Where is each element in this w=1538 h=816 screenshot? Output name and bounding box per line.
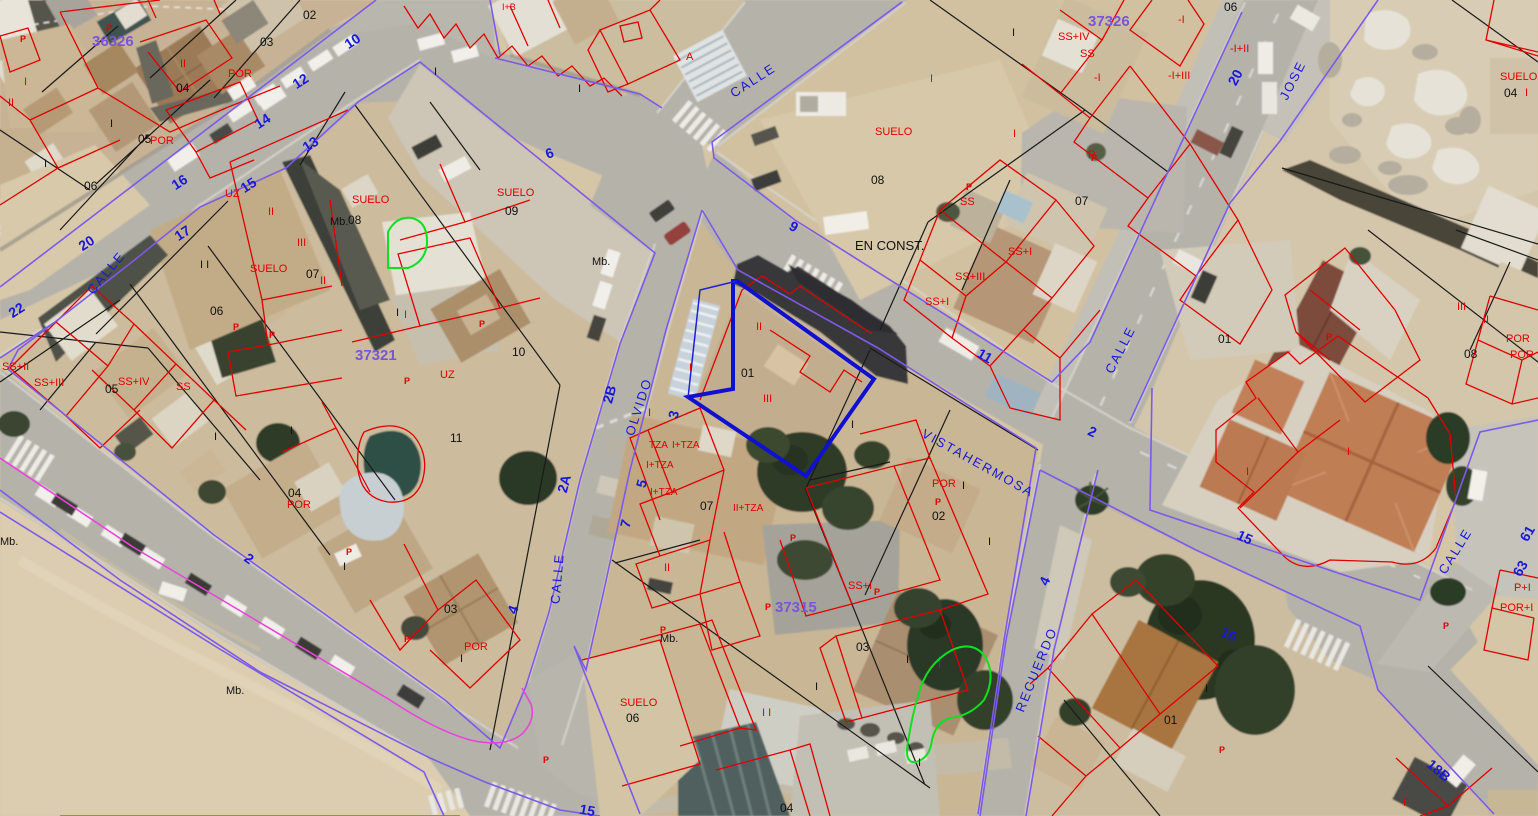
svg-text:POR: POR [1506, 333, 1530, 345]
svg-text:I: I [110, 118, 113, 130]
svg-text:03: 03 [260, 35, 274, 49]
svg-text:P: P [1326, 332, 1332, 342]
svg-text:06: 06 [1224, 0, 1238, 14]
svg-text:-I: -I [1094, 72, 1101, 84]
svg-text:P: P [106, 23, 112, 33]
svg-text:I: I [930, 73, 933, 85]
svg-text:Mb.: Mb. [226, 685, 244, 697]
svg-text:I I: I I [200, 259, 209, 271]
svg-text:P: P [404, 634, 410, 644]
svg-text:Mb.: Mb. [0, 536, 18, 548]
svg-text:I: I [290, 425, 293, 437]
svg-text:P+I: P+I [1514, 582, 1531, 594]
svg-text:-I: -I [1178, 14, 1185, 26]
svg-text:I: I [214, 431, 217, 443]
svg-text:SUELO: SUELO [497, 187, 535, 199]
svg-text:SUELO: SUELO [875, 126, 913, 138]
svg-text:07: 07 [1075, 194, 1089, 208]
svg-text:II: II [1483, 314, 1489, 326]
svg-text:A: A [686, 51, 694, 63]
svg-text:36326: 36326 [92, 33, 134, 50]
svg-text:37315: 37315 [775, 599, 817, 616]
svg-text:SUELO: SUELO [250, 263, 288, 275]
svg-text:06: 06 [210, 304, 224, 318]
svg-text:POR+I: POR+I [1500, 602, 1533, 614]
svg-text:III: III [1457, 301, 1466, 313]
svg-text:P: P [1219, 745, 1225, 755]
svg-text:UZ: UZ [225, 188, 240, 200]
svg-text:10: 10 [512, 345, 526, 359]
svg-text:POR: POR [228, 68, 252, 80]
svg-text:08: 08 [1464, 347, 1478, 361]
svg-text:I: I [1013, 128, 1016, 140]
svg-text:02: 02 [303, 8, 317, 22]
svg-text:SS+I: SS+I [925, 296, 949, 308]
svg-text:09: 09 [505, 204, 519, 218]
svg-text:I: I [815, 681, 818, 693]
svg-text:11: 11 [450, 431, 463, 445]
svg-text:08: 08 [348, 213, 362, 227]
svg-text:I: I [988, 536, 991, 548]
svg-text:SS+III: SS+III [955, 271, 985, 283]
svg-text:P: P [765, 602, 771, 612]
svg-text:01: 01 [741, 366, 755, 380]
svg-text:P: P [269, 330, 275, 340]
svg-text:POR: POR [464, 641, 488, 653]
svg-text:I: I [1205, 683, 1208, 695]
svg-text:I+TZA: I+TZA [646, 460, 674, 471]
svg-text:SS+IV: SS+IV [118, 376, 150, 388]
svg-text:01: 01 [1218, 332, 1232, 346]
svg-text:III: III [763, 393, 772, 405]
svg-text:02: 02 [932, 509, 946, 523]
svg-text:P: P [543, 755, 549, 765]
svg-text:I: I [578, 83, 581, 95]
svg-text:04: 04 [1504, 86, 1518, 100]
svg-text:I: I [918, 757, 921, 769]
svg-text:I I: I I [762, 707, 771, 719]
svg-text:07: 07 [306, 267, 320, 281]
svg-text:I+B: I+B [502, 2, 516, 12]
svg-text:EN CONST.: EN CONST. [855, 238, 924, 253]
svg-text:II: II [180, 58, 186, 70]
svg-text:P: P [935, 497, 941, 507]
svg-text:I+TZA: I+TZA [650, 487, 678, 498]
svg-text:P: P [1091, 153, 1097, 163]
svg-text:II: II [756, 321, 762, 333]
svg-text:P: P [404, 376, 410, 386]
svg-text:SS+II: SS+II [2, 361, 29, 373]
svg-text:I: I [962, 480, 965, 492]
svg-text:-I+III: -I+III [1168, 70, 1190, 82]
svg-text:SUELO: SUELO [620, 697, 658, 709]
svg-text:II: II [320, 275, 326, 287]
svg-text:I: I [396, 307, 399, 319]
svg-text:P: P [874, 587, 880, 597]
svg-text:I: I [24, 76, 27, 88]
svg-text:SS+III: SS+III [34, 377, 64, 389]
svg-text:I: I [851, 419, 854, 431]
svg-text:01: 01 [1164, 713, 1178, 727]
svg-text:II: II [8, 97, 14, 109]
svg-text:I: I [434, 66, 437, 78]
svg-text:I: I [648, 407, 651, 419]
svg-text:37326: 37326 [1088, 13, 1130, 30]
svg-text:P: P [790, 533, 796, 543]
svg-text:SS: SS [960, 196, 975, 208]
svg-text:04: 04 [288, 486, 302, 500]
svg-text:I: I [1012, 27, 1015, 39]
svg-text:P: P [479, 319, 485, 329]
svg-text:POR: POR [1510, 349, 1534, 361]
svg-text:III: III [297, 237, 306, 249]
svg-text:P: P [660, 625, 666, 635]
svg-text:II+TZA: II+TZA [733, 503, 764, 514]
svg-text:I: I [906, 654, 909, 666]
svg-text:08: 08 [871, 173, 885, 187]
svg-text:POR: POR [932, 478, 956, 490]
svg-text:Mb.: Mb. [592, 256, 610, 268]
svg-text:POR: POR [287, 499, 311, 511]
svg-text:SS+I: SS+I [1008, 246, 1032, 258]
svg-text:-I+II: -I+II [1230, 43, 1249, 55]
svg-text:POR: POR [150, 135, 174, 147]
svg-text:SS+IV: SS+IV [1058, 31, 1090, 43]
svg-text:UZ: UZ [440, 369, 455, 381]
svg-text:II: II [268, 206, 274, 218]
svg-text:I+TZA: I+TZA [672, 440, 700, 451]
svg-text:05: 05 [105, 382, 119, 396]
svg-text:I: I [460, 653, 463, 665]
svg-text:TZA: TZA [649, 440, 668, 451]
svg-text:I: I [343, 561, 346, 573]
svg-text:P: P [346, 547, 352, 557]
svg-text:I: I [404, 309, 407, 321]
svg-text:I: I [938, 659, 941, 671]
svg-text:SS: SS [1080, 48, 1095, 60]
svg-text:06: 06 [626, 711, 640, 725]
svg-text:I: I [689, 362, 692, 374]
svg-text:II: II [1403, 797, 1409, 809]
svg-text:P: P [233, 322, 239, 332]
svg-text:04: 04 [780, 801, 794, 815]
svg-text:03: 03 [856, 640, 870, 654]
svg-text:Mb.: Mb. [330, 216, 348, 228]
svg-text:37321: 37321 [355, 347, 397, 364]
svg-text:07: 07 [700, 499, 714, 513]
svg-text:P: P [1443, 621, 1449, 631]
svg-text:03: 03 [444, 602, 458, 616]
svg-text:SS: SS [176, 381, 191, 393]
svg-text:P: P [20, 34, 26, 44]
svg-text:I: I [1246, 466, 1249, 478]
svg-text:I: I [1347, 446, 1350, 458]
svg-text:SS+I: SS+I [848, 580, 872, 592]
svg-text:SUELO: SUELO [1500, 71, 1538, 83]
svg-text:06: 06 [84, 179, 98, 193]
svg-text:SUELO: SUELO [352, 194, 390, 206]
svg-text:II: II [664, 562, 670, 574]
svg-text:I: I [1525, 87, 1528, 99]
svg-text:P: P [966, 182, 972, 192]
svg-text:15: 15 [578, 801, 596, 816]
svg-text:04: 04 [176, 81, 190, 95]
svg-text:I: I [44, 158, 47, 170]
